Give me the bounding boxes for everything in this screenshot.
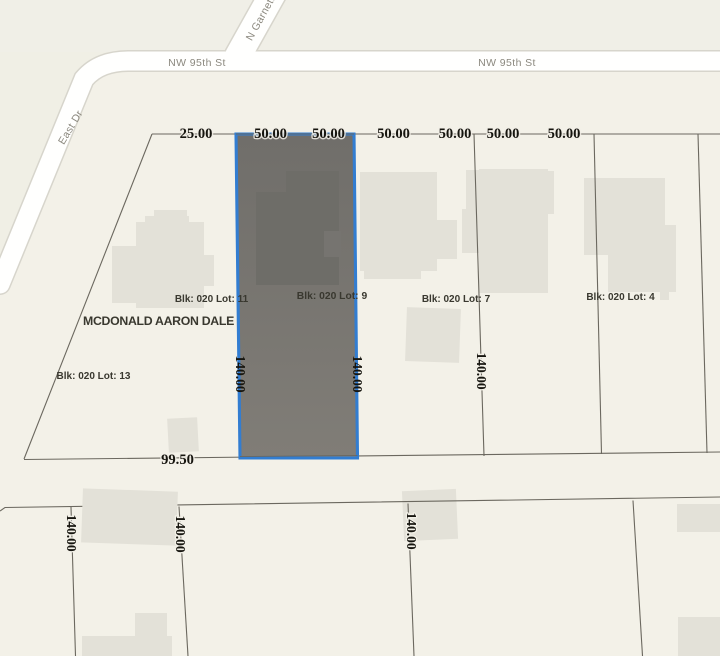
svg-text:NW 95th St: NW 95th St [478,57,536,69]
svg-text:140.00: 140.00 [233,355,248,392]
svg-text:Blk: 020 Lot: 4: Blk: 020 Lot: 4 [586,292,655,303]
svg-text:Blk: 020 Lot: 13: Blk: 020 Lot: 13 [57,371,131,382]
svg-text:50.00: 50.00 [254,126,287,142]
svg-text:25.00: 25.00 [180,126,213,142]
svg-text:140.00: 140.00 [64,514,79,551]
svg-text:MCDONALD AARON DALE: MCDONALD AARON DALE [83,314,234,328]
svg-text:50.00: 50.00 [548,126,581,142]
svg-text:Blk: 020 Lot: 7: Blk: 020 Lot: 7 [422,294,491,305]
svg-text:140.00: 140.00 [404,512,419,549]
svg-text:Blk: 020 Lot: 9: Blk: 020 Lot: 9 [297,291,368,302]
svg-text:140.00: 140.00 [173,515,188,552]
svg-text:140.00: 140.00 [474,352,489,389]
svg-text:NW 95th St: NW 95th St [168,57,226,69]
svg-text:140.00: 140.00 [350,355,365,392]
svg-text:Blk: 020 Lot: 11: Blk: 020 Lot: 11 [175,294,249,305]
svg-text:50.00: 50.00 [487,126,520,142]
svg-text:99.50: 99.50 [161,452,194,468]
svg-text:50.00: 50.00 [312,126,345,142]
svg-text:50.00: 50.00 [377,126,410,142]
svg-text:50.00: 50.00 [439,126,472,142]
